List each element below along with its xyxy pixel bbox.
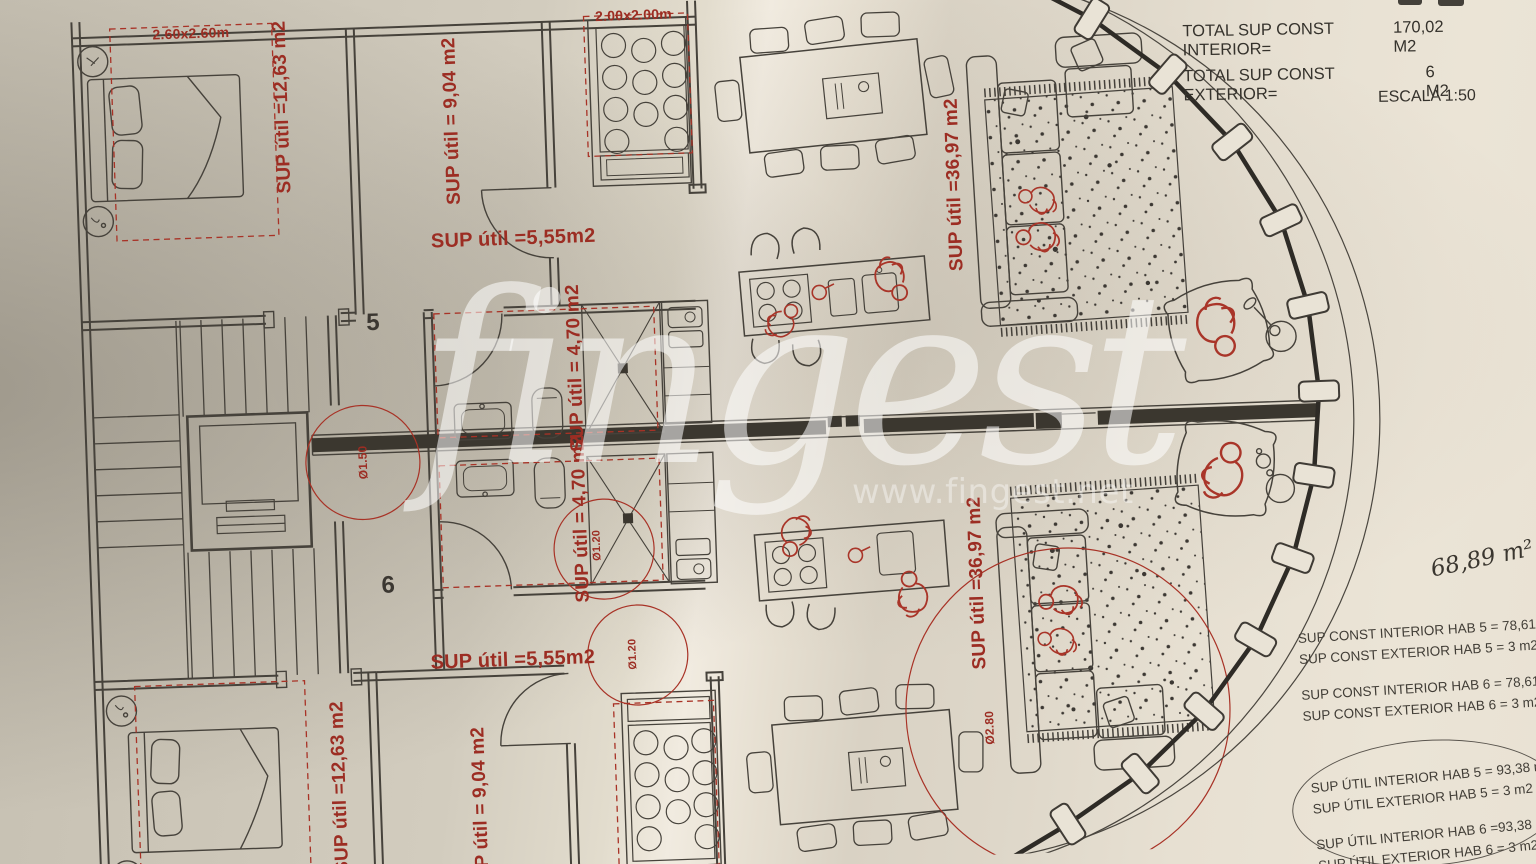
rug-unit6	[1010, 478, 1215, 739]
total-interior-value: 170,02 M2	[1393, 18, 1461, 57]
staircase	[90, 316, 318, 681]
cropped-text-remnant	[1398, 0, 1422, 5]
bath6-diameter-label: Ø1.20	[590, 530, 603, 561]
total-interior-line: TOTAL SUP CONST INTERIOR= 170,02 M2	[1182, 18, 1461, 61]
bed-unit6	[106, 691, 284, 864]
tall-unit-column-5	[661, 300, 711, 424]
elevator	[187, 412, 312, 550]
central-corridor	[312, 399, 1318, 455]
unit6-number: 6	[381, 571, 396, 599]
bedroom5-dim-label: 2.60x2.60m	[152, 24, 229, 43]
plan-linework	[0, 0, 1536, 864]
dining-table-6	[741, 678, 992, 856]
closet-unit6	[621, 690, 721, 864]
closet-unit5	[588, 17, 692, 186]
unit5-number: 5	[366, 309, 381, 337]
floor-lamp-unit6	[1256, 448, 1295, 504]
total-interior-label: TOTAL SUP CONST INTERIOR=	[1182, 19, 1393, 61]
living6-diameter-label: Ø2.80	[982, 711, 997, 745]
closet5-dim-label: 2.00x2.00m	[595, 5, 672, 24]
tall-unit-column-6	[667, 452, 718, 584]
bathroom-unit5	[451, 302, 664, 441]
floor-plan-drawing: SUP útil =12,63 m2 2.60x2.60m SUP útil =…	[0, 0, 1536, 864]
bed-unit5	[77, 42, 245, 238]
dining-table-5	[709, 4, 962, 182]
hall6-diameter-label: Ø1.20	[626, 638, 639, 669]
cropped-text-remnant	[1438, 0, 1464, 6]
scale-label: ESCALA 1:50	[1378, 87, 1476, 107]
const-summary-block: SUP CONST INTERIOR HAB 5 = 78,61 m2 SUP …	[1297, 612, 1536, 727]
landing-diameter-label: Ø1.50	[355, 445, 370, 479]
floor-plan-photo: SUP útil =12,63 m2 2.60x2.60m SUP útil =…	[0, 0, 1536, 864]
